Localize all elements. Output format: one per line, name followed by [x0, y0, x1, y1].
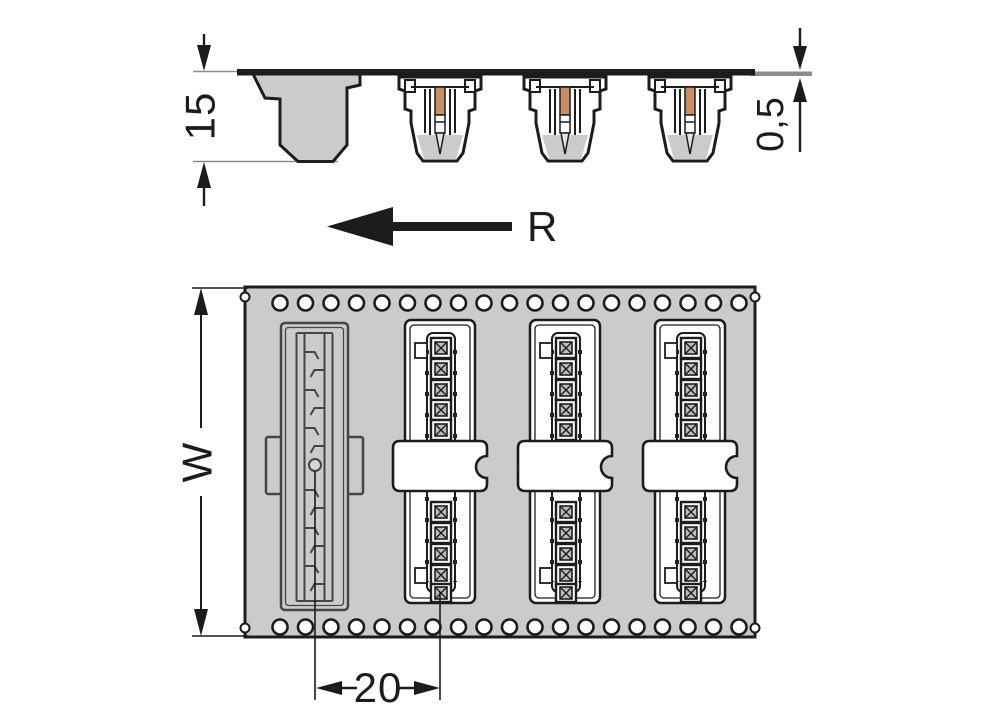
dim-label-tape-thickness: 0,5 [750, 96, 792, 152]
dimension-pocket-depth: 15 [177, 34, 224, 206]
arrow-left-icon [316, 681, 342, 695]
technical-drawing-page: 15 0,5 R [0, 0, 1000, 720]
arrow-up-icon [197, 162, 211, 188]
dimension-unit-pitch: 20 [316, 664, 440, 711]
pocket-profile [253, 74, 360, 162]
direction-label: R [527, 203, 558, 250]
connector-profile-3 [649, 77, 731, 161]
arrow-down-icon [197, 45, 211, 71]
dim-label-unit-pitch: 20 [354, 664, 403, 711]
pocket-ear-right [347, 437, 363, 494]
dimension-tape-width: W [174, 288, 249, 636]
connector-profile-2 [524, 77, 606, 161]
drawing-canvas: 15 0,5 R [0, 0, 1000, 720]
arrow-down-icon [194, 609, 208, 636]
arrow-down-icon [793, 46, 807, 70]
arrow-left-icon [327, 207, 393, 246]
dim-label-pocket-depth: 15 [177, 92, 224, 141]
connector-profile-1 [399, 77, 481, 161]
tape-cut-nick [751, 293, 760, 302]
dimension-tape-thickness: 0,5 [750, 28, 807, 152]
connector-top-3 [643, 320, 737, 603]
arrow-up-icon [793, 78, 807, 102]
tape-cut-nick [241, 293, 250, 302]
dim-label-tape-width: W [174, 442, 221, 483]
connector-top-2 [518, 320, 612, 603]
arrow-up-icon [194, 288, 208, 315]
side-view: 15 0,5 R [177, 28, 813, 250]
pocket-ear-left [266, 437, 282, 494]
direction-arrow-shaft [390, 222, 512, 231]
arrow-right-icon [414, 681, 440, 695]
tape-cut-nick [751, 624, 760, 633]
tape-line-extension-right [750, 72, 812, 77]
top-view: W 20 [174, 287, 760, 711]
pocket-center-hole [309, 459, 321, 471]
connector-top-1 [393, 320, 487, 603]
tape-cut-nick [241, 624, 250, 633]
unwinding-direction: R [327, 203, 558, 250]
